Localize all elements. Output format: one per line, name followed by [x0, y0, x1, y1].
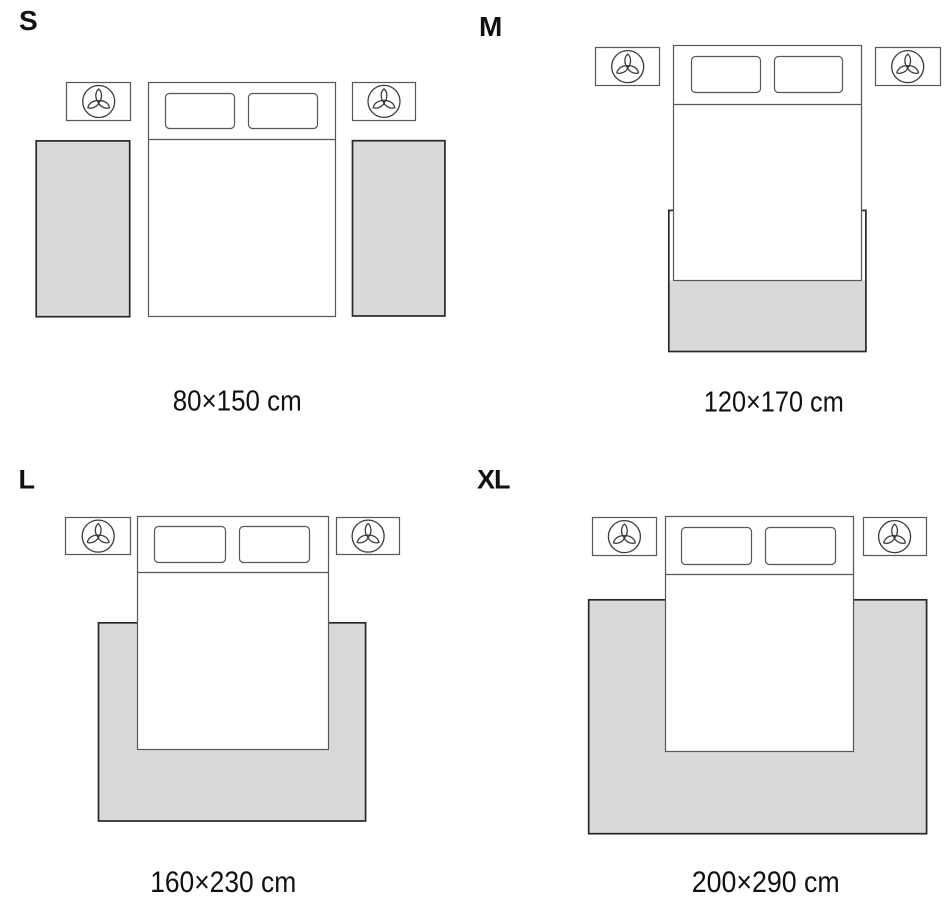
svg-text:200×290 cm: 200×290 cm [692, 866, 840, 899]
svg-text:L: L [19, 465, 36, 495]
svg-text:120×170 cm: 120×170 cm [704, 386, 844, 418]
svg-text:160×230 cm: 160×230 cm [150, 866, 296, 899]
svg-text:80×150 cm: 80×150 cm [173, 386, 302, 418]
svg-text:S: S [19, 5, 38, 36]
svg-text:M: M [479, 11, 502, 42]
svg-text:XL: XL [477, 465, 510, 495]
